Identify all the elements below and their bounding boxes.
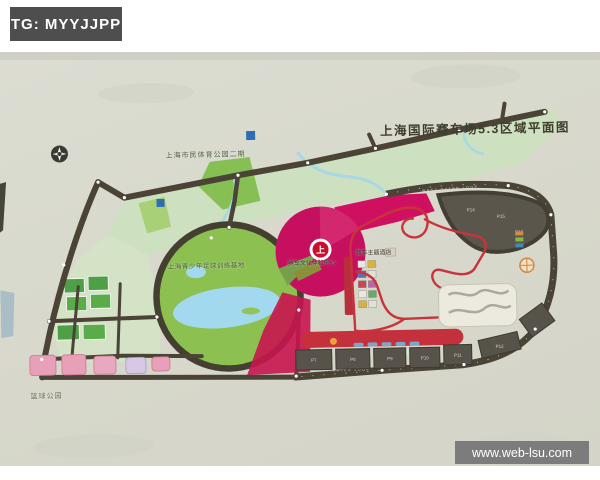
map-canvas: 上	[0, 46, 600, 472]
compass-rose-icon	[51, 145, 68, 162]
svg-text:P10: P10	[421, 355, 430, 360]
label-citizen-sports-park: 上海市民体育公园二期	[165, 149, 245, 161]
svg-text:P8: P8	[350, 357, 356, 362]
northeast-parking: P14 P15 P16	[438, 191, 549, 253]
label-racing-culture-center: 赛车文化体验中心	[288, 257, 336, 267]
label-racing-theme-hotel: 赛车主题酒店	[356, 247, 392, 257]
photo-edge-artifacts	[0, 182, 15, 338]
label-youth-football-base: 上海青少年足球训练基地	[168, 259, 245, 271]
karting-area	[438, 283, 517, 327]
svg-text:P9: P9	[387, 356, 393, 361]
svg-text:P14: P14	[467, 207, 476, 212]
svg-text:P15: P15	[497, 214, 506, 219]
telegram-badge: TG: MYYJJPP	[10, 7, 122, 41]
map-photo: 上	[0, 52, 600, 466]
svg-text:P7: P7	[311, 358, 317, 363]
svg-text:上: 上	[316, 244, 325, 255]
svg-text:P11: P11	[454, 353, 462, 358]
svg-text:P12: P12	[496, 344, 505, 349]
label-basketball-park: 篮球公园	[30, 391, 62, 402]
page: TG: MYYJJPP	[0, 0, 600, 480]
watermark: www.web-lsu.com	[455, 441, 589, 464]
